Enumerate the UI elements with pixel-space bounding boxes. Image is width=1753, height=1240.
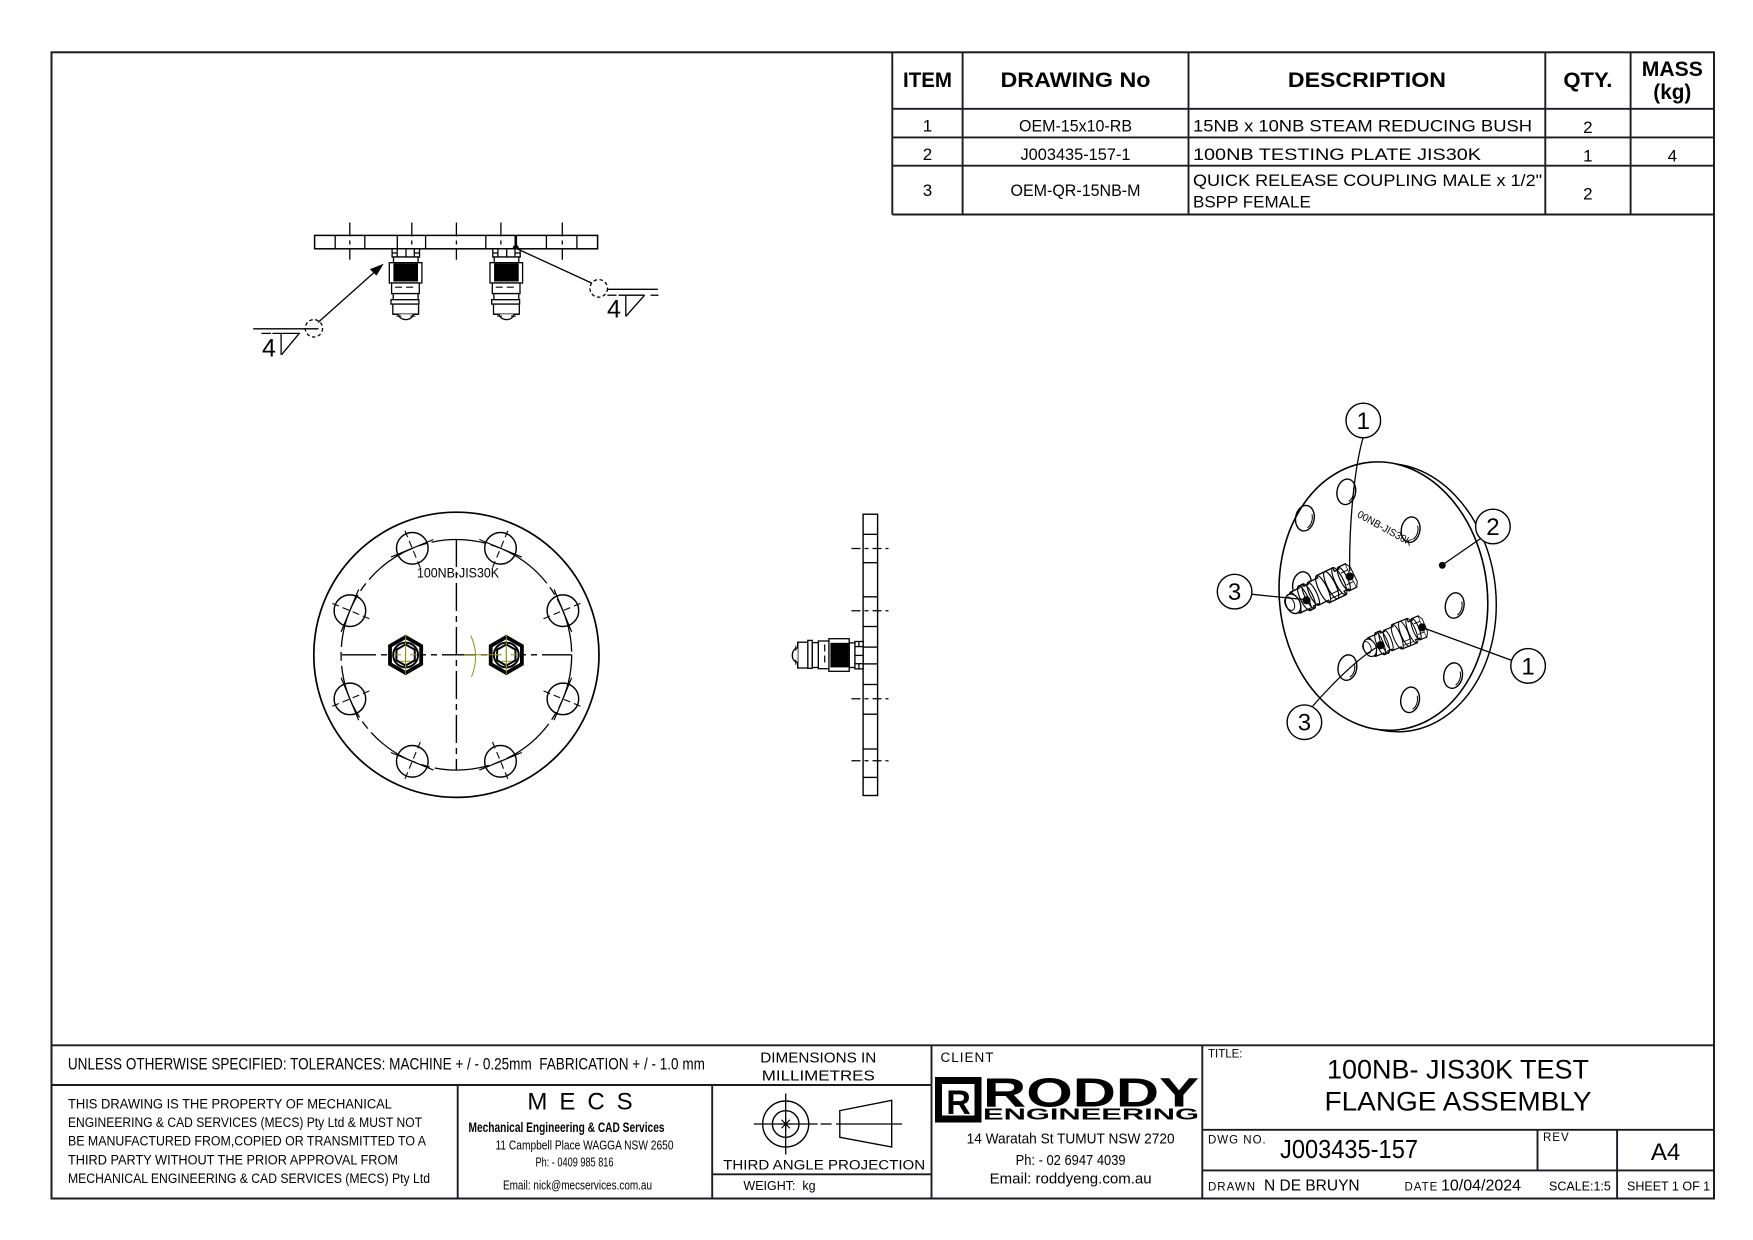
svg-text:2: 2	[923, 145, 932, 164]
svg-text:4: 4	[262, 335, 276, 363]
svg-text:3: 3	[923, 181, 932, 200]
svg-text:ENGINEERING: ENGINEERING	[983, 1107, 1199, 1124]
svg-text:1: 1	[1521, 653, 1534, 680]
svg-text:REV: REV	[1543, 1132, 1570, 1144]
svg-text:OEM-QR-15NB-M: OEM-QR-15NB-M	[1011, 181, 1141, 200]
svg-text:15NB x 10NB STEAM REDUCING BUS: 15NB x 10NB STEAM REDUCING BUSH	[1193, 117, 1532, 136]
svg-text:DESCRIPTION: DESCRIPTION	[1288, 69, 1446, 92]
svg-text:Mechanical Engineering & CAD S: Mechanical Engineering & CAD Services	[469, 1119, 665, 1135]
svg-text:MASS: MASS	[1642, 58, 1703, 81]
svg-text:THIS DRAWING IS THE PROPERTY O: THIS DRAWING IS THE PROPERTY OF MECHANIC…	[68, 1097, 392, 1112]
svg-text:100NB- JIS30K TEST: 100NB- JIS30K TEST	[1327, 1055, 1589, 1085]
svg-text:CLIENT: CLIENT	[941, 1050, 995, 1065]
svg-text:1: 1	[1357, 408, 1370, 435]
svg-text:SHEET 1 OF 1: SHEET 1 OF 1	[1627, 1180, 1710, 1194]
svg-text:14 Waratah St TUMUT NSW 2720: 14 Waratah St TUMUT NSW 2720	[967, 1131, 1175, 1148]
svg-text:MECHANICAL ENGINEERING & CAD S: MECHANICAL ENGINEERING & CAD SERVICES (M…	[68, 1171, 430, 1186]
svg-text:(kg): (kg)	[1653, 81, 1691, 104]
svg-text:100NB TESTING PLATE JIS30K: 100NB TESTING PLATE JIS30K	[1193, 145, 1482, 164]
svg-text:MECS: MECS	[527, 1089, 644, 1116]
svg-text:N DE BRUYN: N DE BRUYN	[1264, 1178, 1360, 1195]
svg-text:FLANGE ASSEMBLY: FLANGE ASSEMBLY	[1325, 1087, 1592, 1117]
svg-text:2: 2	[1583, 118, 1592, 137]
svg-text:BE MANUFACTURED FROM,COPIED OR: BE MANUFACTURED FROM,COPIED OR TRANSMITT…	[68, 1134, 426, 1149]
svg-text:MILLIMETRES: MILLIMETRES	[762, 1068, 875, 1085]
svg-text:UNLESS OTHERWISE SPECIFIED: TO: UNLESS OTHERWISE SPECIFIED: TOLERANCES: …	[68, 1055, 705, 1074]
svg-text:SCALE:1:5: SCALE:1:5	[1549, 1180, 1611, 1194]
svg-text:J003435-157: J003435-157	[1280, 1134, 1418, 1164]
svg-text:3: 3	[1228, 579, 1241, 606]
svg-text:3: 3	[1298, 710, 1311, 737]
svg-text:Ph: - 02 6947 4039: Ph: - 02 6947 4039	[1016, 1152, 1126, 1169]
svg-text:J003435-157-1: J003435-157-1	[1021, 145, 1131, 164]
svg-text:THIRD ANGLE PROJECTION: THIRD ANGLE PROJECTION	[723, 1158, 925, 1173]
svg-text:100NB-JIS30K: 100NB-JIS30K	[417, 565, 500, 581]
svg-text:A4: A4	[1651, 1139, 1680, 1166]
svg-text:Ph: - 0409 985 816: Ph: - 0409 985 816	[536, 1156, 614, 1170]
svg-text:DIMENSIONS IN: DIMENSIONS IN	[760, 1050, 876, 1067]
svg-text:DATE: DATE	[1405, 1182, 1439, 1194]
svg-text:2: 2	[1583, 185, 1592, 204]
svg-text:OEM-15x10-RB: OEM-15x10-RB	[1019, 117, 1132, 136]
svg-text:THIRD PARTY WITHOUT THE PRIOR: THIRD PARTY WITHOUT THE PRIOR APPROVAL F…	[68, 1152, 398, 1167]
svg-text:TITLE:: TITLE:	[1208, 1049, 1243, 1061]
svg-text:DRAWING No: DRAWING No	[1001, 69, 1151, 92]
svg-text:Email: roddyeng.com.au: Email: roddyeng.com.au	[990, 1171, 1152, 1188]
svg-text:DRAWN: DRAWN	[1208, 1182, 1256, 1194]
svg-text:ENGINEERING & CAD SERVICES (ME: ENGINEERING & CAD SERVICES (MECS) Pty Lt…	[68, 1115, 422, 1130]
svg-text:4: 4	[1668, 147, 1677, 166]
svg-text:4: 4	[607, 296, 621, 324]
svg-text:R: R	[946, 1084, 971, 1122]
svg-text:BSPP FEMALE: BSPP FEMALE	[1193, 193, 1311, 212]
svg-text:10/04/2024: 10/04/2024	[1441, 1178, 1521, 1195]
svg-text:ITEM: ITEM	[903, 69, 952, 92]
svg-text:11 Campbell Place WAGGA NSW 26: 11 Campbell Place WAGGA NSW 2650	[496, 1139, 674, 1153]
svg-text:DWG NO.: DWG NO.	[1208, 1135, 1267, 1147]
svg-text:QTY.: QTY.	[1563, 69, 1612, 92]
svg-text:QUICK RELEASE COUPLING MALE x: QUICK RELEASE COUPLING MALE x 1/2"	[1193, 171, 1542, 190]
svg-text:Email: nick@mecservices.com.au: Email: nick@mecservices.com.au	[503, 1179, 652, 1193]
svg-text:1: 1	[923, 117, 932, 136]
svg-text:WEIGHT: kg: WEIGHT: kg	[743, 1179, 815, 1193]
svg-text:2: 2	[1486, 514, 1499, 541]
svg-text:1: 1	[1583, 147, 1592, 166]
